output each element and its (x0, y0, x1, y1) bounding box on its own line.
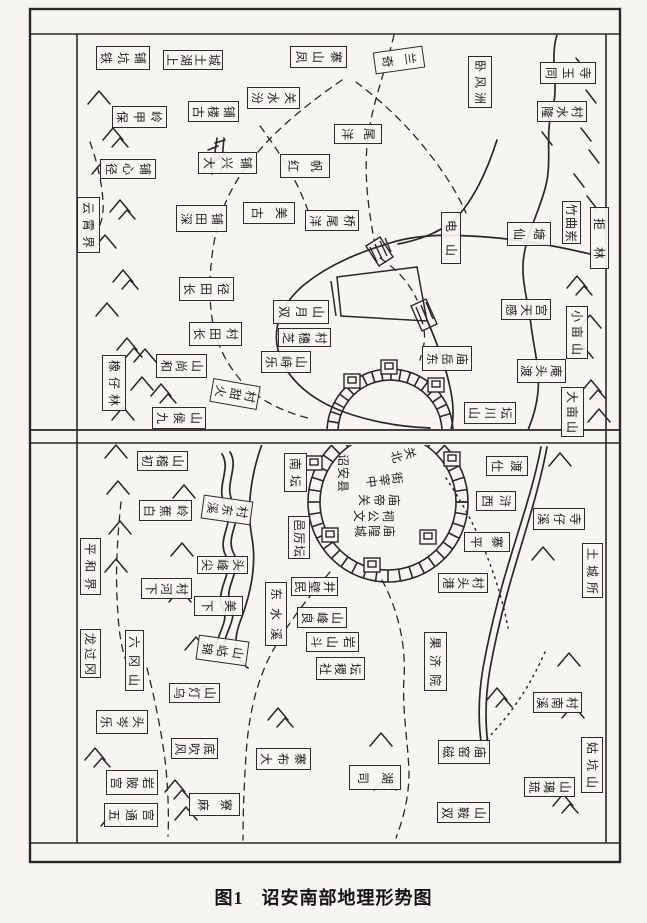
map-label-lezhishan: 乐峙山 (261, 351, 311, 373)
map-label-damushan: 大亩山 (561, 387, 584, 437)
map-label-sihu: 司湖 (349, 765, 401, 790)
map-label-shuanganshan: 双鞍山 (437, 802, 490, 823)
map-label-shanchuantan: 山川坛 (464, 402, 516, 424)
map-label-daxingpu: 大兴铺 (198, 152, 257, 174)
map-label-heshangshan: 和尚山 (156, 354, 207, 378)
map-label-doushanyan: 斗山岩 (306, 632, 359, 652)
map-label-longguogang: 龙过冈 (80, 629, 101, 678)
map-label-xidongcun: 溪东村 (201, 495, 254, 526)
map-label-shidu: 仕渡 (486, 456, 528, 476)
map-label-jinhushan: 锦岵山 (196, 635, 250, 667)
map-label-xiantang: 仙塘 (507, 222, 551, 246)
map-label-jingxinpu: 径心铺 (100, 159, 156, 179)
map-label-xiangzailin: 橡仔林 (102, 355, 126, 411)
map-label-changtianjing: 长田径 (179, 277, 234, 301)
figure-caption: 图1诏安南部地理形势图 (0, 884, 647, 910)
map-label-yunxiaojie: 云霄界 (77, 197, 100, 253)
map-label-xinancun: 溪南村 (533, 692, 582, 713)
caption-number: 图1 (215, 888, 244, 908)
map-label-huotiancun: 火甜村 (209, 378, 260, 410)
map-label-xiahecun: 下河村 (141, 578, 192, 599)
map-label-baijiaoling: 白蕉岭 (139, 500, 192, 521)
map-label-guojiyuan: 果济院 (424, 632, 447, 691)
map-label-wutonggong: 五通宫 (104, 803, 158, 827)
city-text-guandimiao: 关帝庙 (356, 492, 402, 508)
map-label-chujishan: 初稽山 (137, 451, 188, 471)
map-label-gongpiyan: 宫陂岩 (106, 770, 158, 795)
map-label-nantan: 南坛 (284, 453, 307, 492)
map-label-liugangshan: 六冈山 (125, 630, 144, 691)
map-label-yangweiqiao: 洋尾桥 (305, 210, 359, 231)
map-label-yilitan: 邑厉坛 (288, 516, 310, 559)
map-label-xiaomushan: 小亩山 (566, 306, 588, 359)
map-label-yangwei: 洋尾 (334, 124, 382, 144)
map-label-tiekengpu: 铁坑铺 (96, 46, 150, 70)
map-label-fenshuiguan: 汾水关 (247, 87, 300, 109)
scanned-map-figure: 铁坑铺上湖土城凤山寨奇兰卧风洲同玉寺隆水村汾水关古楼铺保甲岭大兴铺径心铺红帆洋尾… (0, 0, 647, 923)
map-label-shuangyueshan: 双月山 (273, 300, 329, 324)
map-label-longshuicun: 隆水村 (537, 101, 587, 122)
caption-title: 诏安南部地理形势图 (262, 888, 433, 908)
map-label-julin: 拒林 (590, 207, 609, 269)
map-label-dabuzhai: 大布寨 (256, 748, 311, 770)
map-label-wofengzhou: 卧风洲 (468, 56, 492, 108)
map-label-shejitan: 社稷坛 (316, 657, 365, 680)
city-text-wengongci: 文公祠 (351, 508, 396, 523)
map-label-xihu: 西浒 (476, 491, 516, 511)
map-label-dongyuemiao: 东岳庙 (422, 346, 472, 371)
map-label-changtiancun: 长田村 (189, 322, 242, 346)
map-label-zhuqudong: 竹曲岽 (562, 201, 581, 244)
map-label-gukengshan: 姑坑山 (581, 737, 603, 793)
city-text-chenghuangmiao: 城隍庙 (352, 523, 397, 538)
map-label-minbijing: 民壁井 (291, 577, 338, 596)
map-label-shentianpu: 深田铺 (176, 205, 227, 232)
map-label-dongshuixi: 东水溪 (265, 582, 287, 646)
map-label-pingzhai: 平寨 (464, 532, 510, 552)
map-label-baojialing: 保甲岭 (112, 106, 167, 128)
map-label-wudengshan: 乌灯山 (169, 683, 220, 703)
map-label-jianfengtou: 尖峰头 (197, 556, 248, 574)
map-label-gumei: 古美 (243, 202, 295, 224)
map-label-shanghutucheng: 上湖土城 (163, 50, 223, 70)
city-text-zhongzaijie: 中宰街 (362, 469, 406, 491)
map-label-zhisuicun: 芝穗村 (278, 328, 331, 347)
map-labels-layer: 铁坑铺上湖土城凤山寨奇兰卧风洲同玉寺隆水村汾水关古楼铺保甲岭大兴铺径心铺红帆洋尾… (0, 0, 647, 923)
map-label-guloupu: 古楼铺 (188, 101, 239, 122)
city-text-zhaoanxian: 诏安县 (334, 452, 352, 494)
city-text-beiguan: 北关 (387, 444, 420, 465)
map-label-gangtoucun: 港头村 (438, 573, 488, 593)
map-label-liangfengshan: 良峰山 (297, 607, 347, 628)
map-label-jiuhoushan: 九侯山 (152, 407, 206, 429)
map-label-dutouan: 渡头庵 (517, 359, 566, 383)
map-label-ciyaomiao: 磁窑庙 (438, 740, 490, 764)
map-label-qilan: 奇兰 (373, 46, 426, 75)
map-label-dianshan: 电山 (441, 212, 461, 264)
map-label-fengchuidi: 风吹底 (171, 738, 218, 759)
map-label-lecentou: 乐岑头 (96, 710, 148, 734)
map-label-maliao: 麻寮 (189, 793, 240, 816)
map-label-xiamei: 下美 (194, 596, 243, 616)
map-label-fengshanzhai: 凤山寨 (290, 46, 347, 68)
map-label-tuchengsuo: 土城所 (582, 543, 603, 598)
map-label-pinghejie: 平和界 (80, 538, 101, 595)
map-label-liulishan: 琉璃山 (524, 777, 575, 797)
map-label-hongfan: 红帆 (280, 154, 330, 178)
map-label-gantiangong: 感天宫 (501, 299, 551, 320)
map-label-tongyusi: 同玉寺 (540, 62, 596, 84)
map-label-xizaisi: 溪仔寺 (533, 508, 585, 530)
